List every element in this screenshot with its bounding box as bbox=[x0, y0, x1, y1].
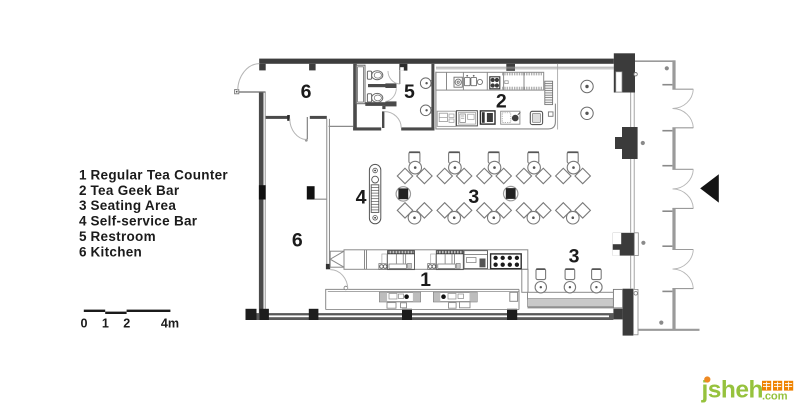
svg-text:2: 2 bbox=[123, 317, 130, 331]
svg-text:4: 4 bbox=[356, 186, 367, 208]
svg-text:3: 3 bbox=[468, 186, 479, 208]
svg-text:5: 5 bbox=[404, 81, 415, 103]
svg-text:3Seating Area: 3Seating Area bbox=[79, 198, 176, 213]
svg-text:6: 6 bbox=[292, 229, 303, 251]
svg-text:4Self-service Bar: 4Self-service Bar bbox=[79, 214, 198, 229]
svg-text:1: 1 bbox=[102, 317, 109, 331]
svg-text:6: 6 bbox=[301, 81, 312, 103]
svg-text:2Tea Geek Bar: 2Tea Geek Bar bbox=[79, 183, 180, 198]
svg-text:6Kitchen: 6Kitchen bbox=[79, 245, 142, 260]
svg-text:2: 2 bbox=[496, 90, 507, 112]
svg-text:3: 3 bbox=[569, 245, 580, 267]
svg-text:1: 1 bbox=[420, 269, 431, 291]
svg-text:1Regular Tea Counter: 1Regular Tea Counter bbox=[79, 167, 228, 182]
svg-text:0: 0 bbox=[80, 317, 87, 331]
svg-text:.com: .com bbox=[762, 391, 788, 403]
svg-text:4m: 4m bbox=[161, 317, 179, 331]
svg-text:5Restroom: 5Restroom bbox=[79, 229, 156, 244]
